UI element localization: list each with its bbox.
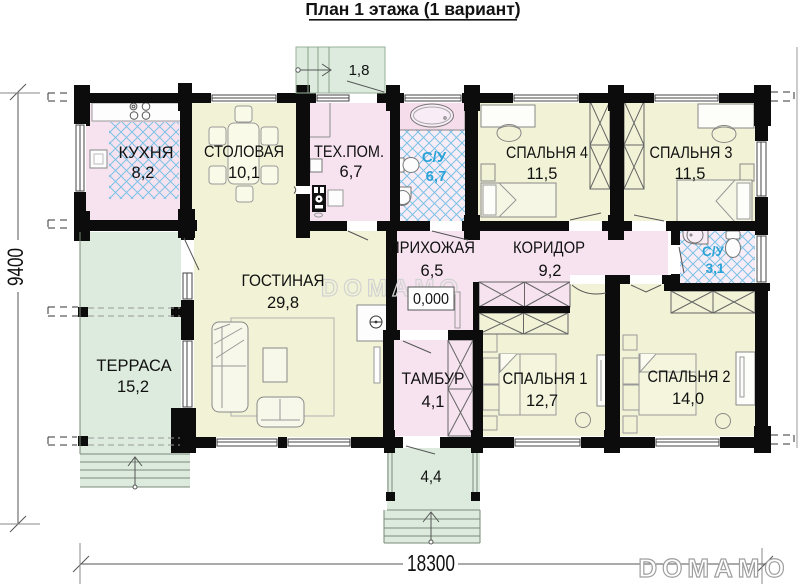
- svg-text:18300: 18300: [407, 550, 455, 576]
- svg-text:СПАЛЬНЯ 2: СПАЛЬНЯ 2: [648, 368, 731, 386]
- svg-text:6,7: 6,7: [426, 168, 447, 185]
- svg-text:4,4: 4,4: [421, 467, 442, 486]
- svg-text:ТАМБУР: ТАМБУР: [402, 370, 465, 388]
- svg-text:DOMAMO: DOMAMO: [638, 553, 789, 583]
- svg-text:СПАЛЬНЯ 1: СПАЛЬНЯ 1: [503, 370, 588, 388]
- svg-text:4,1: 4,1: [422, 393, 445, 411]
- svg-text:С/У: С/У: [702, 244, 725, 259]
- svg-text:ТЕХ.ПОМ.: ТЕХ.ПОМ.: [314, 143, 384, 161]
- svg-text:12,7: 12,7: [526, 392, 558, 410]
- svg-text:КУХНЯ: КУХНЯ: [118, 144, 173, 162]
- svg-text:СПАЛЬНЯ 4: СПАЛЬНЯ 4: [506, 144, 588, 162]
- svg-text:6,7: 6,7: [340, 163, 363, 181]
- svg-text:0,000: 0,000: [413, 291, 449, 308]
- svg-text:8,2: 8,2: [132, 164, 155, 182]
- svg-text:СПАЛЬНЯ 3: СПАЛЬНЯ 3: [650, 144, 733, 162]
- svg-text:15,2: 15,2: [117, 378, 149, 396]
- svg-text:СТОЛОВАЯ: СТОЛОВАЯ: [204, 143, 284, 161]
- svg-text:9,2: 9,2: [539, 262, 562, 280]
- svg-text:6,5: 6,5: [421, 262, 444, 280]
- svg-text:1,8: 1,8: [349, 62, 370, 79]
- svg-text:КОРИДОР: КОРИДОР: [513, 239, 585, 257]
- svg-text:14,0: 14,0: [672, 390, 704, 408]
- svg-text:11,5: 11,5: [527, 165, 558, 183]
- svg-text:9400: 9400: [3, 248, 28, 286]
- svg-text:ТЕРРАСА: ТЕРРАСА: [96, 357, 171, 375]
- svg-text:ПРИХОЖАЯ: ПРИХОЖАЯ: [389, 239, 475, 257]
- svg-text:10,1: 10,1: [228, 164, 260, 182]
- svg-text:С/У: С/У: [422, 149, 447, 166]
- svg-text:ГОСТИНАЯ: ГОСТИНАЯ: [242, 272, 325, 290]
- svg-text:3,1: 3,1: [706, 261, 725, 276]
- svg-text:11,5: 11,5: [675, 165, 706, 183]
- svg-text:План 1 этажа (1 вариант): План 1 этажа (1 вариант): [305, 0, 520, 19]
- svg-text:29,8: 29,8: [267, 294, 299, 312]
